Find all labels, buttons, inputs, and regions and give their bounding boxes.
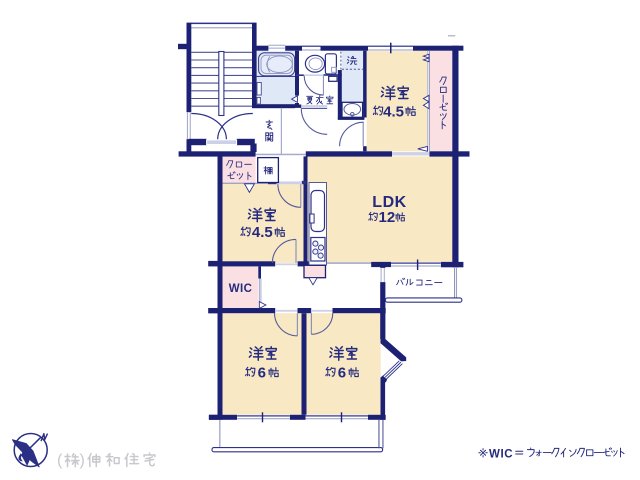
svg-text:4.5: 4.5 [383, 103, 404, 120]
svg-text:WIC: WIC [489, 448, 513, 460]
svg-text:WIC: WIC [229, 283, 253, 295]
svg-text:6: 6 [338, 364, 346, 381]
svg-text:12: 12 [379, 209, 396, 226]
svg-text:): ) [80, 452, 85, 469]
svg-text:6: 6 [258, 364, 266, 381]
svg-text:4.5: 4.5 [252, 224, 273, 241]
svg-text:(: ( [57, 452, 63, 469]
